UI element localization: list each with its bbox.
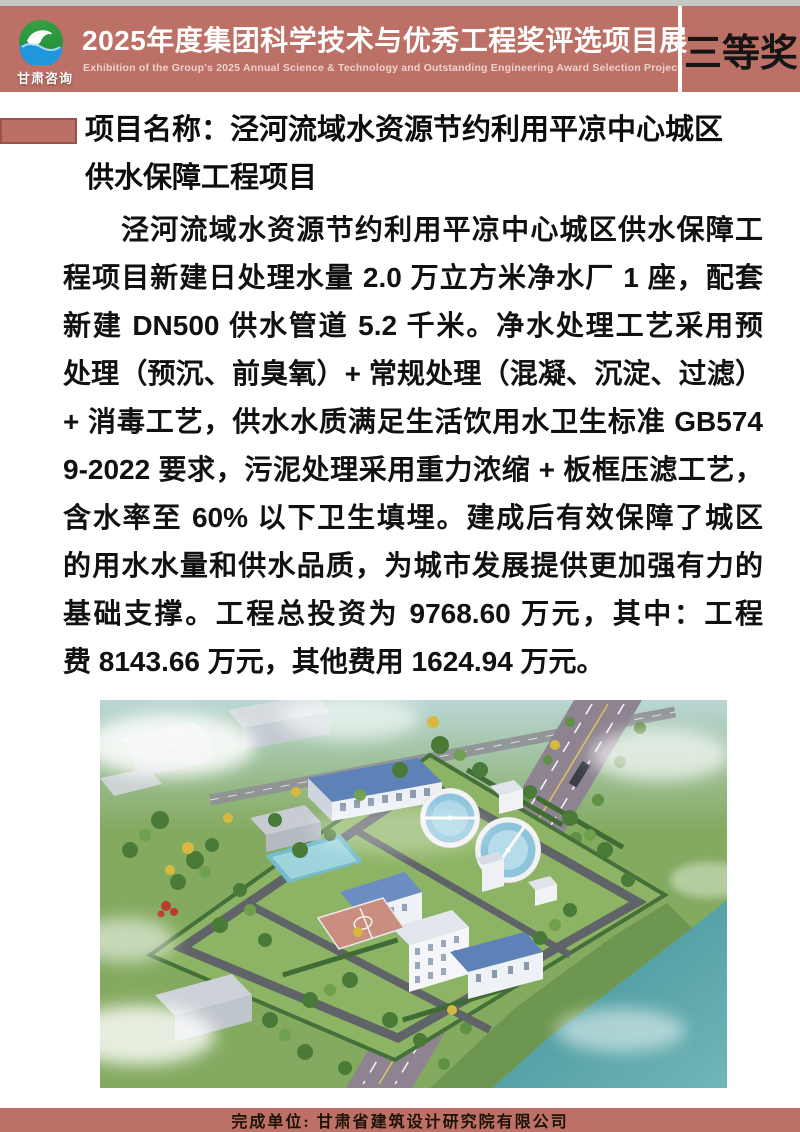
exhibition-subtitle-en: Exhibition of the Group's 2025 Annual Sc… [83,62,683,74]
project-description: 泾河流域水资源节约利用平凉中心城区供水保障工 程项目新建日处理水量 2.0 万立… [63,206,763,686]
header-banner: 甘肃咨询 2025年度集团科学技术与优秀工程奖评选项目展 Exhibition … [0,6,800,92]
project-name-line2: 供水保障工程项目 [85,154,775,202]
poster-page: 甘肃咨询 2025年度集团科学技术与优秀工程奖评选项目展 Exhibition … [0,0,800,1132]
description-line: 处理（预沉、前臭氧）+ 常规处理（混凝、沉淀、过滤） [63,350,763,398]
description-line: 程项目新建日处理水量 2.0 万立方米净水厂 1 座，配套 [63,254,763,302]
description-line: 费 8143.66 万元，其他费用 1624.94 万元。 [63,638,763,686]
completion-unit-label: 完成单位: 甘肃省建筑设计研究院有限公司 [231,1108,568,1132]
exhibition-title: 2025年度集团科学技术与优秀工程奖评选项目展 [82,19,672,59]
project-name-bullet [0,118,77,144]
water-plant-aerial-rendering [100,700,727,1088]
description-line: 的用水水量和供水品质，为城市发展提供更加强有力的 [63,542,763,590]
description-line: 泾河流域水资源节约利用平凉中心城区供水保障工 [63,206,763,254]
project-name-line1: 项目名称：泾河流域水资源节约利用平凉中心城区 [85,106,775,154]
award-badge-label: 三等奖 [684,22,798,77]
description-line: 新建 DN500 供水管道 5.2 千米。净水处理工艺采用预 [63,302,763,350]
org-name-label: 甘肃咨询 [2,68,88,87]
description-line: 基础支撑。工程总投资为 9768.60 万元，其中：工程 [63,590,763,638]
award-badge: 三等奖 [682,6,800,92]
swan-globe-logo-icon [18,19,64,65]
footer-bar: 完成单位: 甘肃省建筑设计研究院有限公司 [0,1108,800,1132]
description-line: 9-2022 要求，污泥处理采用重力浓缩 + 板框压滤工艺， [63,446,763,494]
project-name: 项目名称：泾河流域水资源节约利用平凉中心城区 供水保障工程项目 [85,106,775,202]
description-line: 含水率至 60% 以下卫生填埋。建成后有效保障了城区 [63,494,763,542]
description-line: + 消毒工艺，供水水质满足生活饮用水卫生标准 GB574 [63,398,763,446]
